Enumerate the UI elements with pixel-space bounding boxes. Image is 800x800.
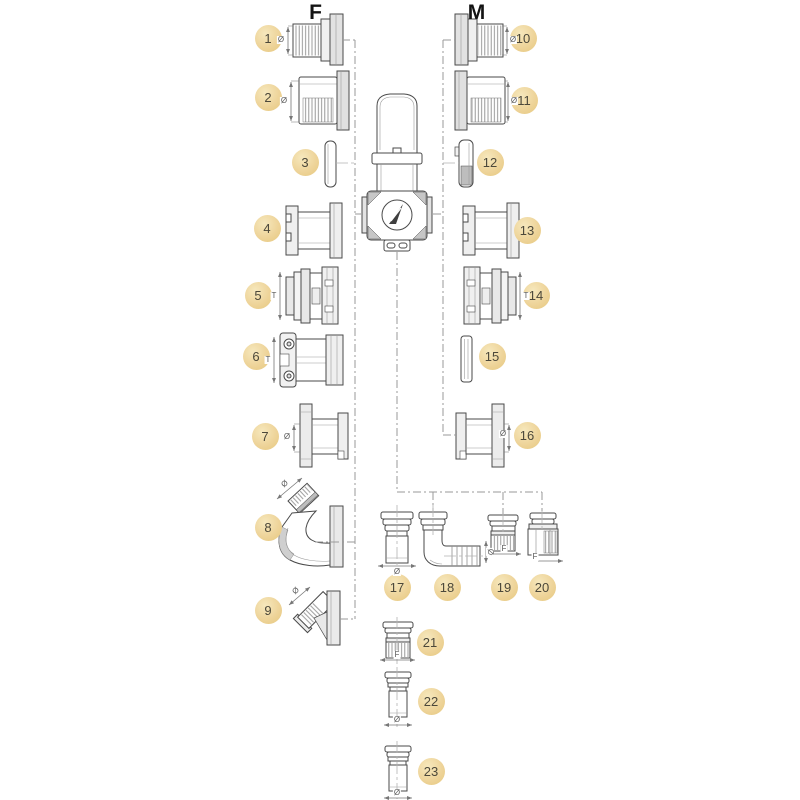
exploded-parts-diagram: F M 1 2 3 4 5 6 7 8 9 10 11 12 13 14 15 …	[0, 0, 800, 800]
part-16-drawing	[456, 404, 504, 467]
part-20-drawing	[528, 513, 558, 555]
dim-diameter-23: Ø	[393, 789, 401, 797]
callout-5: 5	[245, 282, 272, 309]
callout-15: 15	[479, 343, 506, 370]
callout-23: 23	[418, 758, 445, 785]
dim-diameter-22: Ø	[393, 716, 401, 724]
callout-19: 19	[491, 574, 518, 601]
dimension-lines	[274, 26, 563, 798]
part-18-drawing	[419, 512, 480, 566]
part-7-drawing	[300, 404, 348, 467]
callout-13: 13	[514, 217, 541, 244]
dim-thread-6: T	[265, 356, 272, 364]
dim-diameter-7: Ø	[283, 433, 291, 441]
part-22-drawing	[385, 672, 411, 717]
part-23-drawing	[385, 746, 411, 791]
parts-layer	[279, 14, 558, 791]
part-6-drawing	[280, 333, 343, 387]
callout-3: 3	[292, 149, 319, 176]
male-column-header: M	[468, 1, 487, 25]
callout-22: 22	[418, 688, 445, 715]
callout-4: 4	[254, 215, 281, 242]
valve-drawing	[362, 94, 432, 251]
callout-17: 17	[384, 574, 411, 601]
callout-2: 2	[255, 84, 282, 111]
dim-female-20: F	[532, 553, 539, 561]
part-14-drawing	[464, 267, 516, 324]
part-15-drawing	[461, 336, 472, 382]
parts-diagram-canvas	[0, 0, 800, 800]
callout-9: 9	[255, 597, 282, 624]
dim-diameter-2: Ø	[280, 97, 288, 105]
callout-8: 8	[255, 514, 282, 541]
part-13-drawing	[463, 203, 519, 258]
part-8-drawing	[279, 483, 343, 567]
part-9-drawing	[293, 590, 340, 645]
part-3-drawing	[325, 141, 336, 187]
part-5-drawing	[286, 267, 338, 324]
callout-12: 12	[477, 149, 504, 176]
part-4-drawing	[286, 203, 342, 258]
part-12-drawing	[455, 140, 473, 187]
dim-diameter-16: Ø	[499, 430, 507, 438]
dim-diameter-10: Ø	[509, 36, 517, 44]
dim-thread-14: T	[523, 292, 530, 300]
part-11-drawing	[455, 71, 505, 130]
callout-7: 7	[252, 423, 279, 450]
dim-diameter-17: Ø	[393, 568, 401, 576]
dim-female-21: F	[394, 651, 401, 659]
dim-diameter-11: Ø	[510, 97, 518, 105]
callout-18: 18	[434, 574, 461, 601]
part-2-drawing	[299, 71, 349, 130]
dim-female-19: F	[501, 545, 508, 553]
female-column-header: F	[309, 1, 323, 25]
callout-20: 20	[529, 574, 556, 601]
dim-thread-5: T	[271, 292, 278, 300]
dim-diameter-1: Ø	[277, 36, 285, 44]
callout-16: 16	[514, 422, 541, 449]
callout-21: 21	[417, 629, 444, 656]
dim-diameter-18: Ø	[486, 548, 494, 556]
